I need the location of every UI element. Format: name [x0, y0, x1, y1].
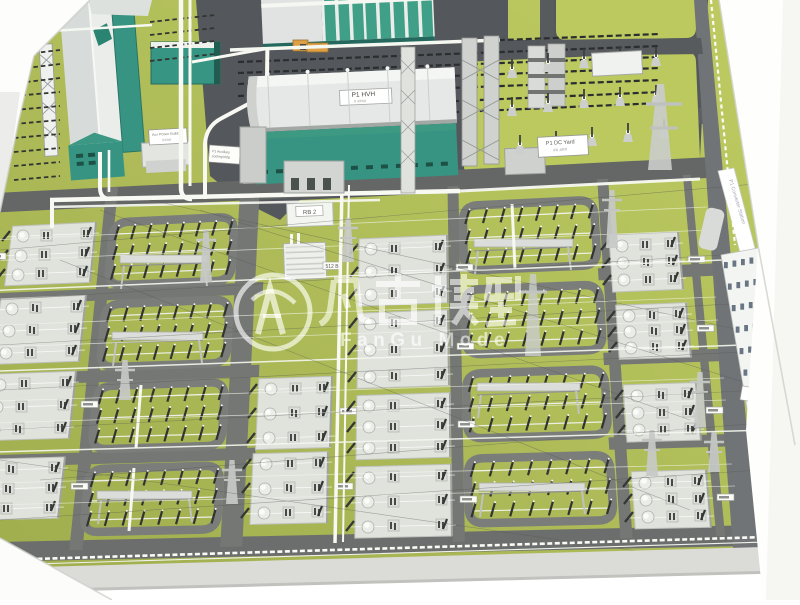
svg-text:FanGu Mode: FanGu Mode: [340, 330, 510, 351]
svg-text:RB 2: RB 2: [303, 210, 317, 216]
svg-text:512 B: 512 B: [326, 264, 340, 270]
svg-text:# ####: # ####: [354, 98, 367, 104]
svg-text:####: ####: [162, 137, 172, 142]
svg-text:## ###: ## ###: [553, 147, 568, 153]
